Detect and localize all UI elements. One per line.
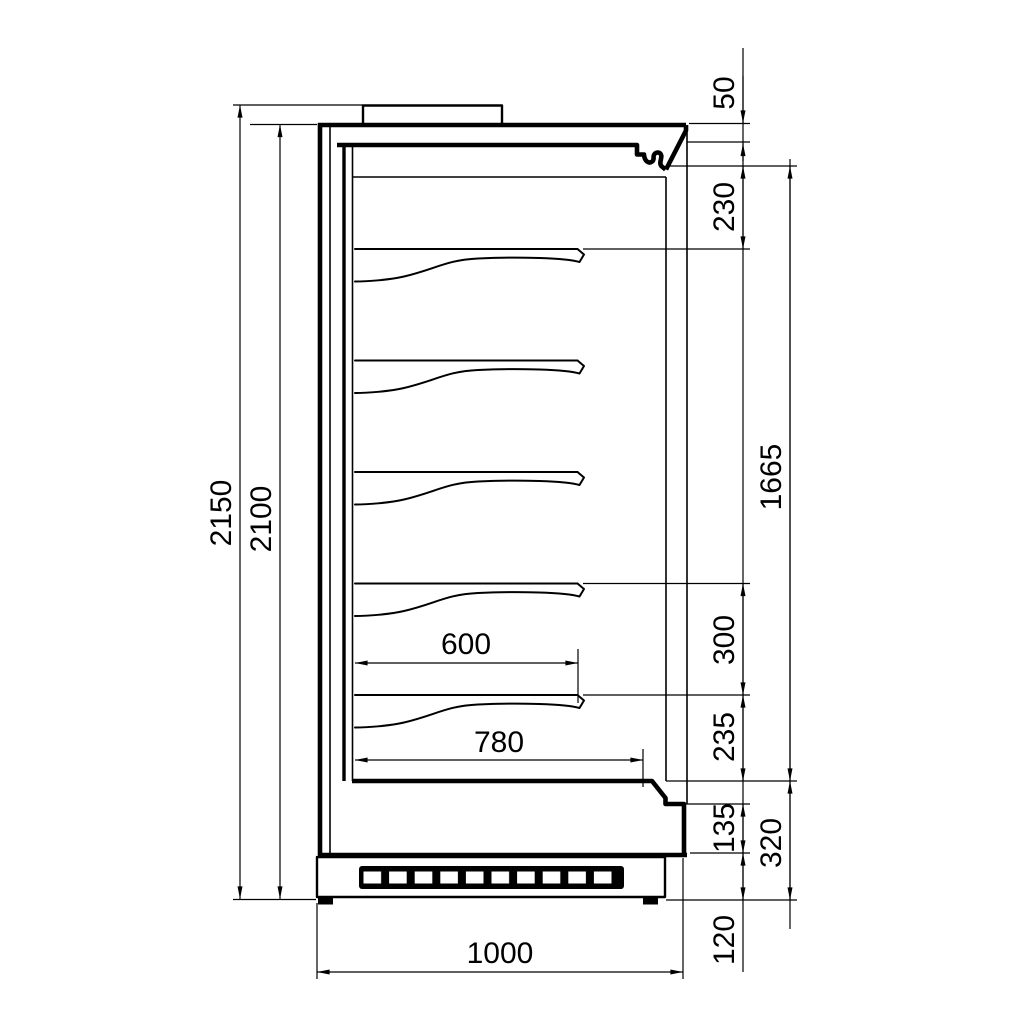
grille-slots [364,872,620,884]
shelf [355,472,584,505]
dim-label-body-height: 2100 [245,486,278,553]
dimension-labels: 2150 2100 50 230 1665 300 235 135 320 12… [205,76,788,970]
dim-label-opening-height: 1665 [755,444,788,511]
canopy-underside-curl [337,145,666,170]
top-cap [363,106,502,125]
base-plinth [317,857,665,905]
dim-label-overall-height: 2150 [205,480,238,547]
foot [318,897,333,905]
shelf [355,695,584,728]
dim-label-deck-depth: 780 [474,726,524,759]
foot [643,897,658,905]
dim-label-front-panel: 135 [708,803,741,853]
dim-label-plinth: 120 [708,915,741,965]
shelf [355,249,584,282]
shelf [355,584,584,617]
dim-label-shelf-depth: 600 [441,628,491,661]
dim-label-overall-depth: 1000 [467,937,534,970]
technical-drawing-canvas: 2150 2100 50 230 1665 300 235 135 320 12… [0,0,1024,1024]
dim-label-canopy-to-shelf: 230 [708,182,741,232]
dim-label-shelf-to-deck: 235 [708,712,741,762]
dim-label-top-panel: 50 [708,76,741,109]
deck-floor-and-step [352,781,684,853]
shelf [355,361,584,394]
multideck-section-drawing: 2150 2100 50 230 1665 300 235 135 320 12… [0,0,1024,1024]
canopy-front-slant [666,125,686,170]
dim-label-base-section: 320 [755,818,788,868]
dim-label-shelf-pitch: 300 [708,615,741,665]
